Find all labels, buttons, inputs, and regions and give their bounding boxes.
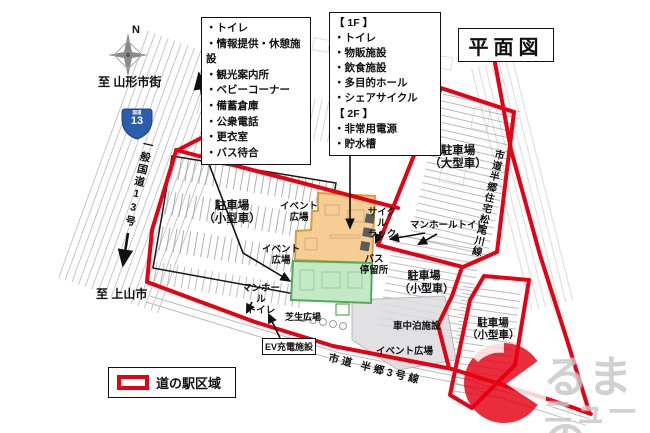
facility-item: ・トイレ — [206, 21, 306, 37]
route-shield-number: 13 — [124, 115, 150, 128]
label-event-plaza-1: イベント 広場 — [280, 202, 318, 224]
legend-box: 道の駅区域 — [108, 367, 236, 398]
facility-item: ・更衣室 — [206, 130, 306, 146]
facility-item: ・多目的ホール — [334, 76, 436, 91]
site-plan-canvas: 至 山形市街 至 上山市 一般国道13号 駐車場 （小型車） 駐車場 （大型車）… — [0, 0, 650, 433]
label-bus-stop: バス 停留所 — [356, 255, 392, 277]
facility-item: ・観光案内所 — [206, 68, 306, 84]
label-lawn-plaza: 芝生広場 — [285, 312, 321, 322]
map-graphics — [0, 0, 650, 433]
facility-item: ・貯水槽 — [334, 137, 436, 152]
facility-item: ・物販施設 — [334, 46, 436, 61]
label-event-plaza-3: イベント広場 — [376, 347, 433, 358]
compass-north-label: N — [132, 24, 140, 37]
facility-item: ・情報提供・休憩施設 — [206, 37, 306, 68]
label-manhole-toilet-left: マンホール トイレ — [238, 284, 284, 317]
facility-box-left: ・トイレ ・情報提供・休憩施設 ・観光案内所 ・ベビーコーナー ・備蓄倉庫 ・公… — [201, 17, 311, 165]
legend-label: 道の駅区域 — [156, 373, 221, 392]
legend-red-area-swatch — [117, 375, 149, 390]
label-to-yamagata: 至 山形市街 — [98, 76, 161, 90]
facility-item: 【 2F 】 — [334, 107, 436, 122]
facility-item: 【 1F 】 — [334, 16, 436, 31]
label-car-stay: 車中泊施設 — [393, 322, 441, 333]
facility-item: ・シェアサイクル — [334, 91, 436, 106]
label-parking-small-left: 駐車場 （小型車） — [203, 200, 261, 226]
facility-item: ・飲食施設 — [334, 61, 436, 76]
page-title: 平面図 — [458, 28, 554, 62]
label-cycle-rack: サイクル ラック — [364, 208, 400, 241]
facility-item: ・ベビーコーナー — [206, 83, 306, 99]
label-parking-small-br: 駐車場 （小型車） — [467, 317, 519, 341]
label-event-plaza-2: イベント 広場 — [262, 245, 300, 267]
facility-item: ・非常用電源 — [334, 122, 436, 137]
label-to-kaminoyama: 至 上山市 — [96, 288, 147, 302]
facility-item: ・備蓄倉庫 — [206, 99, 306, 115]
facility-item: ・バス待合 — [206, 146, 306, 162]
label-parking-small-mid: 駐車場 （小型車） — [399, 270, 449, 295]
facility-item: ・トイレ — [334, 31, 436, 46]
label-ev-charging: EV充電施設 — [262, 338, 316, 355]
facility-item: ・公衆電話 — [206, 115, 306, 131]
facility-box-right: 【 1F 】 ・トイレ ・物販施設 ・飲食施設 ・多目的ホール ・シェアサイクル… — [329, 12, 441, 156]
